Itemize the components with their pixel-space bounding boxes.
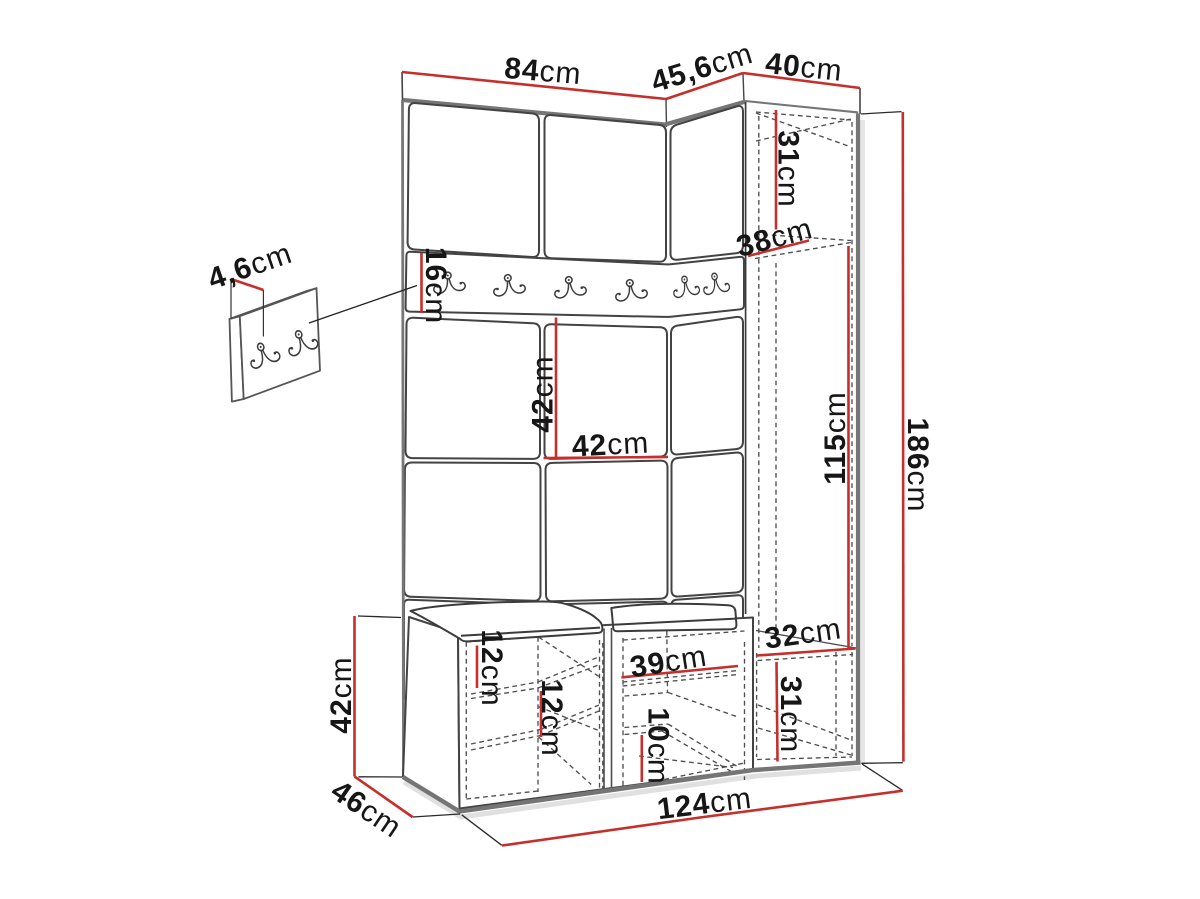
svg-text:16cm: 16cm <box>420 247 453 324</box>
svg-text:84cm: 84cm <box>503 51 583 90</box>
svg-text:12cm: 12cm <box>476 629 509 706</box>
svg-text:42cm: 42cm <box>526 355 559 432</box>
svg-text:10cm: 10cm <box>642 707 675 784</box>
svg-text:115cm: 115cm <box>819 391 852 484</box>
svg-text:186cm: 186cm <box>902 417 935 512</box>
svg-text:42cm: 42cm <box>325 656 358 733</box>
svg-text:12cm: 12cm <box>536 679 569 756</box>
svg-text:31cm: 31cm <box>772 130 805 207</box>
svg-text:31cm: 31cm <box>775 676 808 753</box>
svg-text:42cm: 42cm <box>571 426 650 463</box>
